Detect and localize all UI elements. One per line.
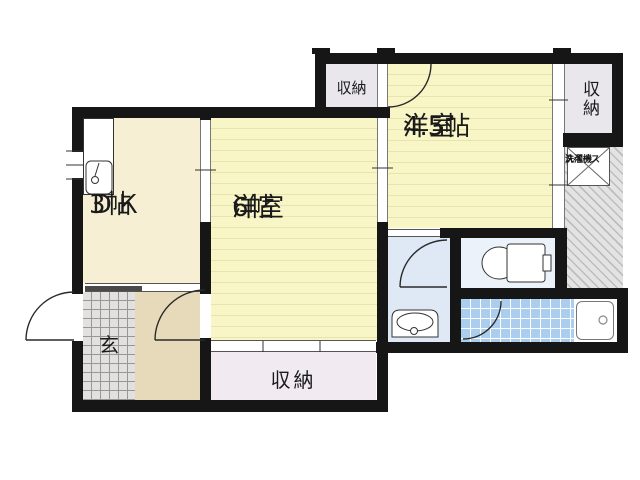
label-entrance: 玄 <box>83 329 135 358</box>
label-dk-size: 3帖 <box>89 190 132 220</box>
slider-ticks-right <box>549 100 568 185</box>
bathtub-drain <box>599 316 607 324</box>
kitchen-sink-unit <box>84 119 114 195</box>
washing-machine-x-mark <box>568 148 609 185</box>
label-closet-top-right: 収納 <box>577 70 599 128</box>
label-western6-size: 6帖 <box>232 193 275 223</box>
label-laundry-line2: スペース <box>565 155 600 166</box>
toilet-fixture <box>482 244 551 282</box>
label-closet-bottom: 収納 <box>211 364 376 393</box>
closet-top-left-door-arc <box>388 64 431 107</box>
label-western45-size: 4.5帖 <box>403 112 470 143</box>
label-closet-top-left: 収納 <box>326 77 377 98</box>
slider-ticks-closet-bottom <box>263 341 320 352</box>
window-and-tick-lines <box>66 100 568 352</box>
washroom-door-arc <box>400 240 447 287</box>
window-lines <box>66 151 85 179</box>
entrance-door-arc <box>26 292 74 340</box>
floor-plan: ＤＫ 3帖 洋室 6帖 洋室 4.5帖 収納 収納 洗濯機 スペース 玄 収納 <box>0 0 640 480</box>
hallway-door-arc <box>155 290 205 340</box>
bathroom-door-arc <box>463 301 501 339</box>
vanity-sink <box>392 310 438 337</box>
fixtures-overlay <box>0 0 640 480</box>
